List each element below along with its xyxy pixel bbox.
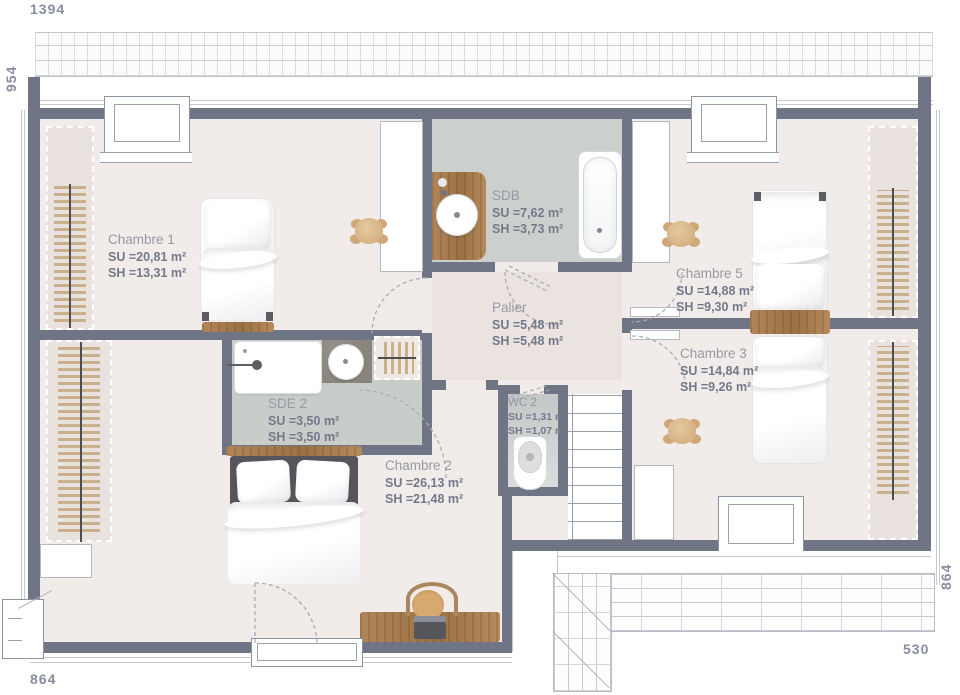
overhang-line-right	[939, 110, 940, 585]
window-inner	[114, 104, 180, 142]
wall-exterior-right	[918, 77, 931, 577]
bed-pillow	[295, 460, 350, 505]
room-name: Palier	[492, 300, 563, 315]
room-label-chambre2: Chambre 2 SU =26,13 m² SH =21,48 m²	[385, 458, 463, 508]
dimension-right: 864	[938, 564, 954, 590]
room-su: SU =5,48 m²	[492, 317, 563, 333]
teddy-bear-chambre5	[667, 221, 695, 247]
overhang-line-left	[24, 110, 25, 655]
bed-bench-chambre1	[202, 322, 274, 332]
wall-sdb-bottom-b	[558, 262, 622, 272]
room-name: Chambre 3	[680, 346, 758, 361]
gutter-strip-vertical	[512, 551, 558, 652]
faucet	[441, 190, 447, 196]
door-leaf	[630, 330, 680, 340]
window-sill	[687, 152, 779, 163]
wall-sde2-left	[222, 340, 232, 445]
dimension-left: 954	[3, 66, 19, 92]
bed-pillow	[756, 338, 824, 368]
bay-window-bottom-left	[2, 599, 44, 659]
closet-hanging-zone	[374, 336, 420, 380]
room-sh: SH =13,31 m²	[108, 265, 186, 281]
room-label-chambre1: Chambre 1 SU =20,81 m² SH =13,31 m²	[108, 232, 186, 282]
wall-chambre1-sdb	[422, 119, 432, 278]
wall-exterior-bottom-right	[502, 540, 931, 551]
headboard-bench-chambre5	[750, 310, 830, 334]
bed-pillow	[205, 202, 270, 250]
wall-sdb-bottom-a	[432, 262, 495, 272]
wardrobe-chambre3	[634, 465, 674, 540]
wall-wc2-left	[498, 385, 508, 496]
room-su: SU =7,62 m²	[492, 205, 563, 221]
room-sh: SH =9,30 m²	[676, 299, 754, 315]
room-label-palier: Palier SU =5,48 m² SH =5,48 m²	[492, 300, 563, 350]
wall-palier-bottom-b	[486, 380, 498, 390]
room-label-wc2: WC 2 SU =1,31 m² SH =1,07 m²	[508, 397, 568, 438]
bed-leg	[202, 312, 209, 321]
roof-tile-band-top	[35, 32, 933, 77]
wardrobe-chambre5	[632, 121, 670, 263]
shower-tray-sde2	[234, 341, 322, 394]
bed-leg	[819, 192, 826, 201]
room-su: SU =14,84 m²	[680, 363, 758, 379]
wall-wc2-top-a	[508, 385, 520, 394]
attic-hatch-line	[80, 342, 82, 542]
dimension-top: 1394	[30, 1, 65, 17]
roof-tiles-bottom-strip	[553, 573, 612, 692]
room-su: SU =26,13 m²	[385, 475, 463, 491]
dimension-bottom-right: 530	[903, 641, 929, 657]
room-name: SDE 2	[268, 396, 339, 411]
bed-leg	[266, 312, 273, 321]
attic-zone-chambre2	[46, 340, 112, 542]
overhang-line-right	[936, 110, 937, 585]
teddy-bear-chambre1	[355, 218, 383, 244]
attic-hatch	[58, 346, 100, 536]
staircase	[568, 394, 622, 540]
window-inner	[728, 504, 794, 544]
attic-zone-chambre3	[868, 340, 918, 540]
overhang-line-left	[21, 110, 22, 655]
shower-head	[243, 349, 247, 353]
room-name: SDB	[492, 188, 563, 203]
room-sh: SH =3,73 m²	[492, 221, 563, 237]
room-label-chambre5: Chambre 5 SU =14,88 m² SH =9,30 m²	[676, 266, 754, 316]
roof-tiles-bottom-right	[560, 573, 935, 632]
window-sill	[100, 152, 192, 163]
bed-pillow	[756, 264, 824, 310]
bathtub-drain	[597, 228, 602, 233]
floor-plan: 1394 954 864 864 530	[0, 0, 960, 695]
dresser-chambre2	[40, 544, 92, 578]
attic-hatch-line	[892, 188, 894, 316]
room-label-sdb: SDB SU =7,62 m² SH =3,73 m²	[492, 188, 563, 238]
soap-dish	[438, 178, 447, 187]
wall-sdb-chambre5	[622, 119, 632, 272]
bay-tick	[8, 618, 22, 619]
wall-stairs-right	[622, 390, 632, 547]
bed-leg	[754, 192, 761, 201]
wall-chambre2-right	[502, 487, 512, 653]
shower-arm	[228, 364, 254, 366]
room-su: SU =20,81 m²	[108, 249, 186, 265]
bathtub-inner	[583, 157, 617, 253]
room-name: Chambre 5	[676, 266, 754, 281]
attic-zone-chambre1	[46, 126, 94, 330]
attic-zone-chambre5	[868, 126, 918, 318]
room-sh: SH =5,48 m²	[492, 333, 563, 349]
room-name: WC 2	[508, 397, 568, 409]
attic-hatch-line	[892, 342, 894, 500]
window-inner	[257, 643, 357, 661]
attic-hatch-line	[69, 184, 71, 328]
laptop	[414, 616, 446, 639]
room-name: Chambre 2	[385, 458, 463, 473]
bay-tick	[8, 640, 22, 641]
bed-pillow	[236, 460, 291, 505]
dimension-bottom-left: 864	[30, 671, 56, 687]
room-sh: SH =3,50 m²	[268, 429, 339, 445]
gutter-band-bottom-right	[512, 551, 931, 574]
room-sh: SH =21,48 m²	[385, 491, 463, 507]
wall-exterior-left	[28, 77, 40, 652]
room-name: Chambre 1	[108, 232, 186, 247]
stair-rail	[572, 394, 573, 540]
headboard-bench-chambre2	[226, 446, 362, 456]
window-inner	[701, 104, 767, 142]
room-sh: SH =9,26 m²	[680, 379, 758, 395]
door-leaf	[630, 307, 680, 317]
room-label-chambre3: Chambre 3 SU =14,84 m² SH =9,26 m²	[680, 346, 758, 396]
sink-drain	[454, 212, 460, 218]
room-sh: SH =1,07 m²	[508, 425, 568, 439]
sink-drain	[343, 359, 348, 364]
teddy-bear-chambre3	[668, 418, 696, 444]
room-su: SU =3,50 m²	[268, 413, 339, 429]
room-su: SU =14,88 m²	[676, 283, 754, 299]
wall-palier-left	[422, 333, 432, 455]
wardrobe-chambre1	[380, 121, 423, 272]
gutter-line	[512, 556, 931, 557]
room-su: SU =1,31 m²	[508, 411, 568, 425]
room-label-sde2: SDE 2 SU =3,50 m² SH =3,50 m²	[268, 396, 339, 446]
toilet-drain	[526, 453, 534, 461]
wall-palier-bottom-a	[432, 380, 446, 390]
closet-rod	[378, 357, 416, 359]
